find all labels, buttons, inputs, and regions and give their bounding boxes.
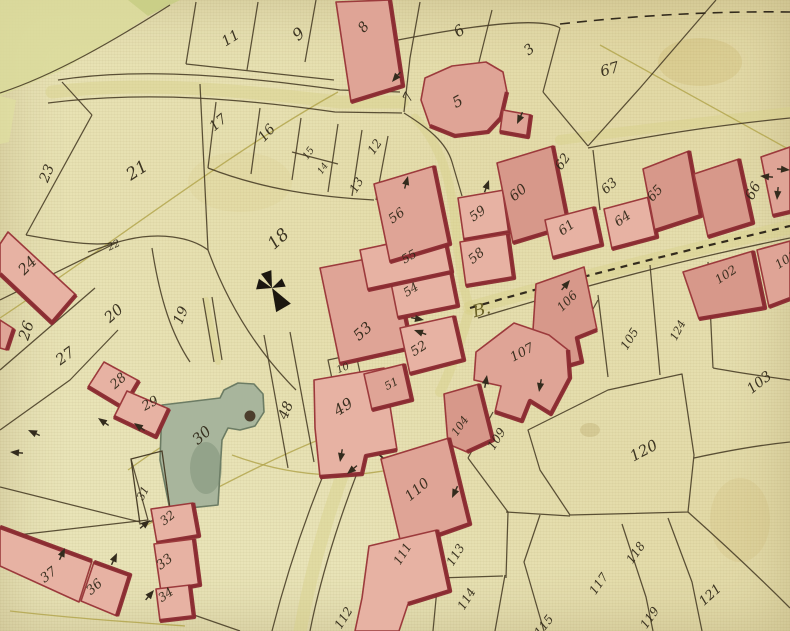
map-canvas: 1198636775171615141213232122182426272019… <box>0 0 790 631</box>
parcel-boundary <box>292 118 301 180</box>
cadastral-map: 1198636775171615141213232122182426272019… <box>0 0 790 631</box>
parcel-boundary <box>186 64 334 80</box>
building-66r <box>761 147 790 216</box>
parcel-boundary <box>694 442 790 458</box>
church-cross-icon <box>272 288 291 312</box>
parcel-label-13: 13 <box>347 175 367 196</box>
parcel-boundary <box>506 512 570 516</box>
parcel-label-103: 103 <box>744 368 775 397</box>
parcel-label-118: 118 <box>623 539 648 566</box>
paper-stain <box>710 478 770 562</box>
parcel-boundary <box>524 515 544 631</box>
parcel-boundary <box>477 10 492 70</box>
parcel-boundary <box>152 248 190 362</box>
terrain-wash <box>0 96 16 144</box>
parcel-label-124: 124 <box>667 318 688 343</box>
parcel-boundary <box>290 332 314 462</box>
parcel-boundary <box>208 250 296 390</box>
parcel-label-22: 22 <box>105 238 122 254</box>
parcel-label-117: 117 <box>586 570 611 597</box>
parcel-boundary <box>0 487 140 522</box>
parcel-label-67: 67 <box>598 58 622 81</box>
parcel-boundary <box>186 2 196 64</box>
parcel-label-114: 114 <box>455 585 479 612</box>
well-icon <box>245 411 256 422</box>
parcel-label-120: 120 <box>627 436 661 466</box>
parcel-label-12: 12 <box>365 136 385 157</box>
parcel-label-63: 63 <box>598 175 620 197</box>
parcel-label-48: 48 <box>275 399 297 423</box>
parcel-boundary <box>543 28 560 92</box>
parcel-label-19: 19 <box>171 304 193 327</box>
parcel-label-119: 119 <box>637 604 662 631</box>
access-arrow-head <box>28 430 38 437</box>
parcel-boundary <box>328 124 338 192</box>
parcel-label-113: 113 <box>444 541 468 568</box>
parcel-label-21: 21 <box>122 157 152 186</box>
church-cross-icon <box>272 278 286 288</box>
parcel-boundary <box>593 150 600 210</box>
parcel-label-16: 16 <box>255 121 279 145</box>
parcel-label-20: 20 <box>100 300 127 327</box>
parcel-boundary <box>305 0 316 62</box>
road-surface <box>560 112 790 140</box>
parcel-label-18: 18 <box>264 224 294 253</box>
parcel-boundary <box>468 458 508 578</box>
paper-stain <box>658 38 742 86</box>
parcel-label-6: 6 <box>450 21 469 41</box>
parcel-boundary <box>26 115 92 235</box>
parcel-label-27: 27 <box>51 343 78 370</box>
parcel-label-26: 26 <box>14 318 37 343</box>
parcel-boundary <box>118 236 208 250</box>
building-37 <box>0 527 92 602</box>
parcel-label-112: 112 <box>332 604 356 631</box>
parcel-label-11: 11 <box>219 27 243 50</box>
parcel-label-105: 105 <box>618 325 642 352</box>
parcel-label-3: 3 <box>521 41 538 59</box>
survey-line <box>232 455 398 475</box>
footpath-dashed <box>560 12 790 24</box>
access-arrow-head <box>10 449 19 456</box>
parcel-boundary <box>26 235 118 244</box>
parcel-label-115: 115 <box>531 612 556 631</box>
parcel-boundary <box>598 295 608 377</box>
parcel-boundary <box>668 518 702 631</box>
parcel-boundary <box>650 265 660 375</box>
parcel-label-121: 121 <box>696 582 724 610</box>
green-area-shade <box>190 442 222 494</box>
parcel-boundary <box>194 615 240 631</box>
access-arrow-head <box>110 553 117 563</box>
access-arrow-head <box>98 418 107 426</box>
parcel-label-17: 17 <box>206 111 230 135</box>
paper-stain <box>580 423 600 437</box>
parcel-label-9: 9 <box>288 23 308 44</box>
access-arrow-head <box>483 180 490 190</box>
parcel-boundary <box>495 575 505 631</box>
parcel-label-15: 15 <box>301 145 317 162</box>
parcel-boundary <box>398 23 560 40</box>
parcel-label-14: 14 <box>316 161 331 176</box>
parcel-boundary <box>247 2 258 70</box>
